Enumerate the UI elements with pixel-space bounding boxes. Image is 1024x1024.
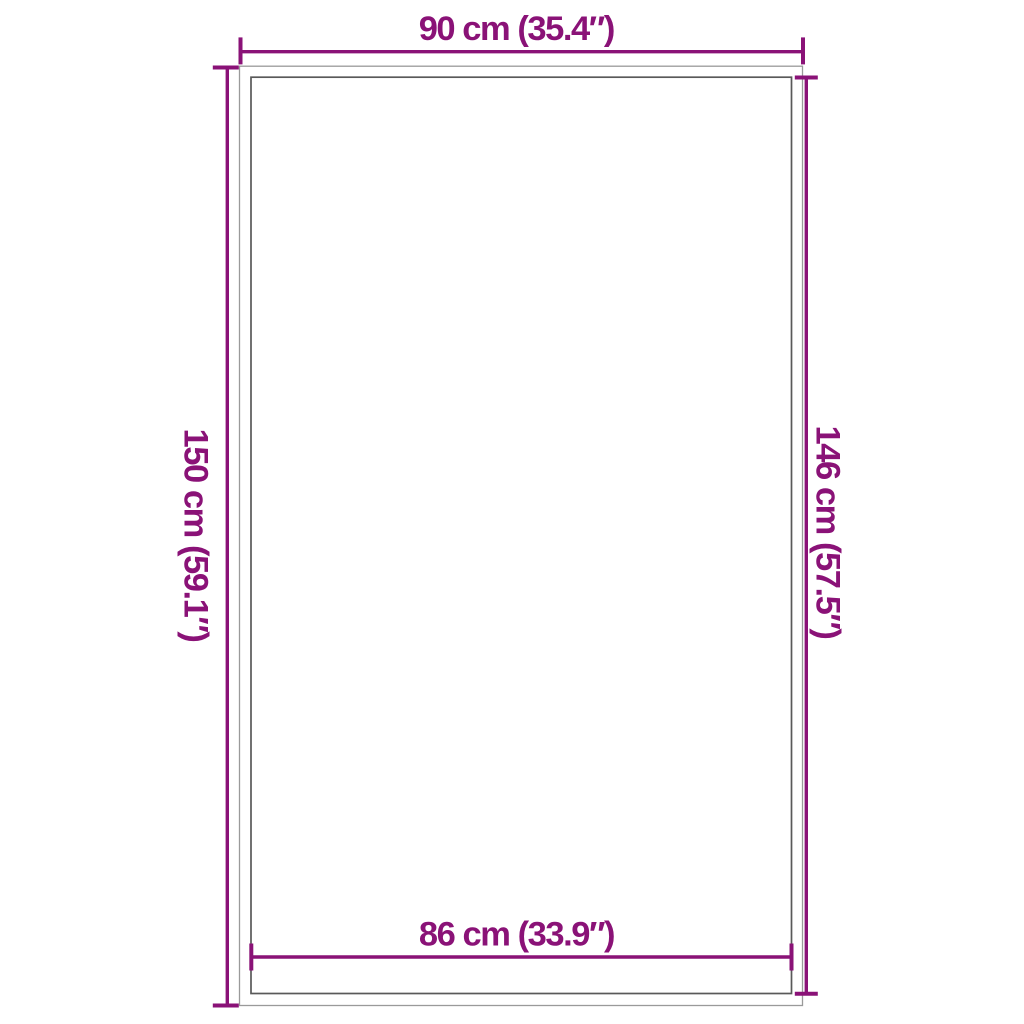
svg-text:90 cm (35.4″): 90 cm (35.4″) bbox=[419, 10, 614, 48]
svg-text:150 cm (59.1″): 150 cm (59.1″) bbox=[177, 429, 215, 642]
svg-text:146 cm (57.5″): 146 cm (57.5″) bbox=[808, 426, 846, 639]
svg-text:86 cm (33.9″): 86 cm (33.9″) bbox=[419, 916, 614, 954]
